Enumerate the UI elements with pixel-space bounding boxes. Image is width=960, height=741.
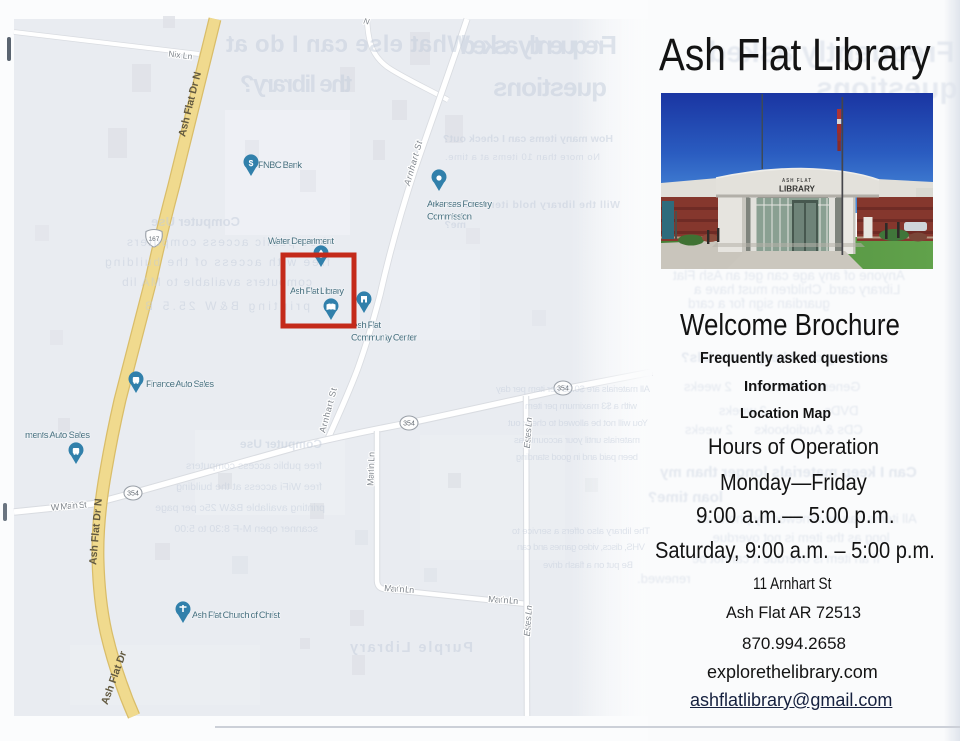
svg-text:All materials are $0.25 per it: All materials are $0.25 per item per day <box>496 384 650 395</box>
svg-text:Be put on a flash drive: Be put on a flash drive <box>543 560 633 571</box>
svg-text:scanner open M-F 8:30 to 5:00: scanner open M-F 8:30 to 5:00 <box>174 523 318 535</box>
svg-text:with a $3 maximum per item: with a $3 maximum per item <box>525 401 638 412</box>
svg-text:354: 354 <box>403 421 415 428</box>
svg-text:Martin Ln: Martin Ln <box>365 452 376 486</box>
svg-text:Martin Ln: Martin Ln <box>488 594 519 606</box>
svg-text:Finance Auto Sales: Finance Auto Sales <box>146 379 214 390</box>
svg-text:Commission: Commission <box>427 212 472 223</box>
svg-text:Purple Library: Purple Library <box>350 640 473 656</box>
svg-text:Martin Ln: Martin Ln <box>384 583 415 595</box>
svg-text:free public access computers: free public access computers <box>186 460 322 472</box>
svg-text:$: $ <box>249 158 254 168</box>
svg-text:Computer Use: Computer Use <box>151 214 240 229</box>
svg-text:LIBRARY: LIBRARY <box>779 185 816 194</box>
svg-text:ASH FLAT: ASH FLAT <box>782 178 812 184</box>
svg-text:ments Auto Sales: ments Auto Sales <box>25 430 90 441</box>
svg-text:the library?: the library? <box>240 71 352 98</box>
svg-text:free WiFi access at the buildi: free WiFi access at the building <box>176 481 322 493</box>
svg-text:VHS, discs, video games and ca: VHS, discs, video games and can <box>517 542 645 553</box>
svg-text:Frequently asked: Frequently asked <box>460 30 617 60</box>
svg-text:Water Department: Water Department <box>268 236 334 247</box>
svg-text:questions: questions <box>493 72 607 102</box>
svg-text:The library also offers a serv: The library also offers a service to <box>512 526 650 537</box>
svg-text:Ash Flat Church of Christ: Ash Flat Church of Christ <box>192 610 280 621</box>
svg-text:How many items can I check out: How many items can I check out? <box>443 133 613 145</box>
svg-text:printing available B&W 25c per: printing available B&W 25c per page <box>155 502 325 514</box>
svg-text:Arkansas Forestry: Arkansas Forestry <box>427 199 492 210</box>
svg-text:354: 354 <box>127 491 139 498</box>
svg-text:Ash Flat Library: Ash Flat Library <box>290 286 344 297</box>
svg-text:Computer Use: Computer Use <box>240 437 322 451</box>
svg-text:Community Center: Community Center <box>351 333 418 344</box>
svg-text:No more than 10 items at a tim: No more than 10 items at a time. <box>445 152 600 163</box>
svg-text:What else can I do at: What else can I do at <box>226 31 470 58</box>
svg-text:been paid and in good standing: been paid and in good standing <box>516 452 638 463</box>
svg-text:FNBC Bank: FNBC Bank <box>258 160 302 171</box>
